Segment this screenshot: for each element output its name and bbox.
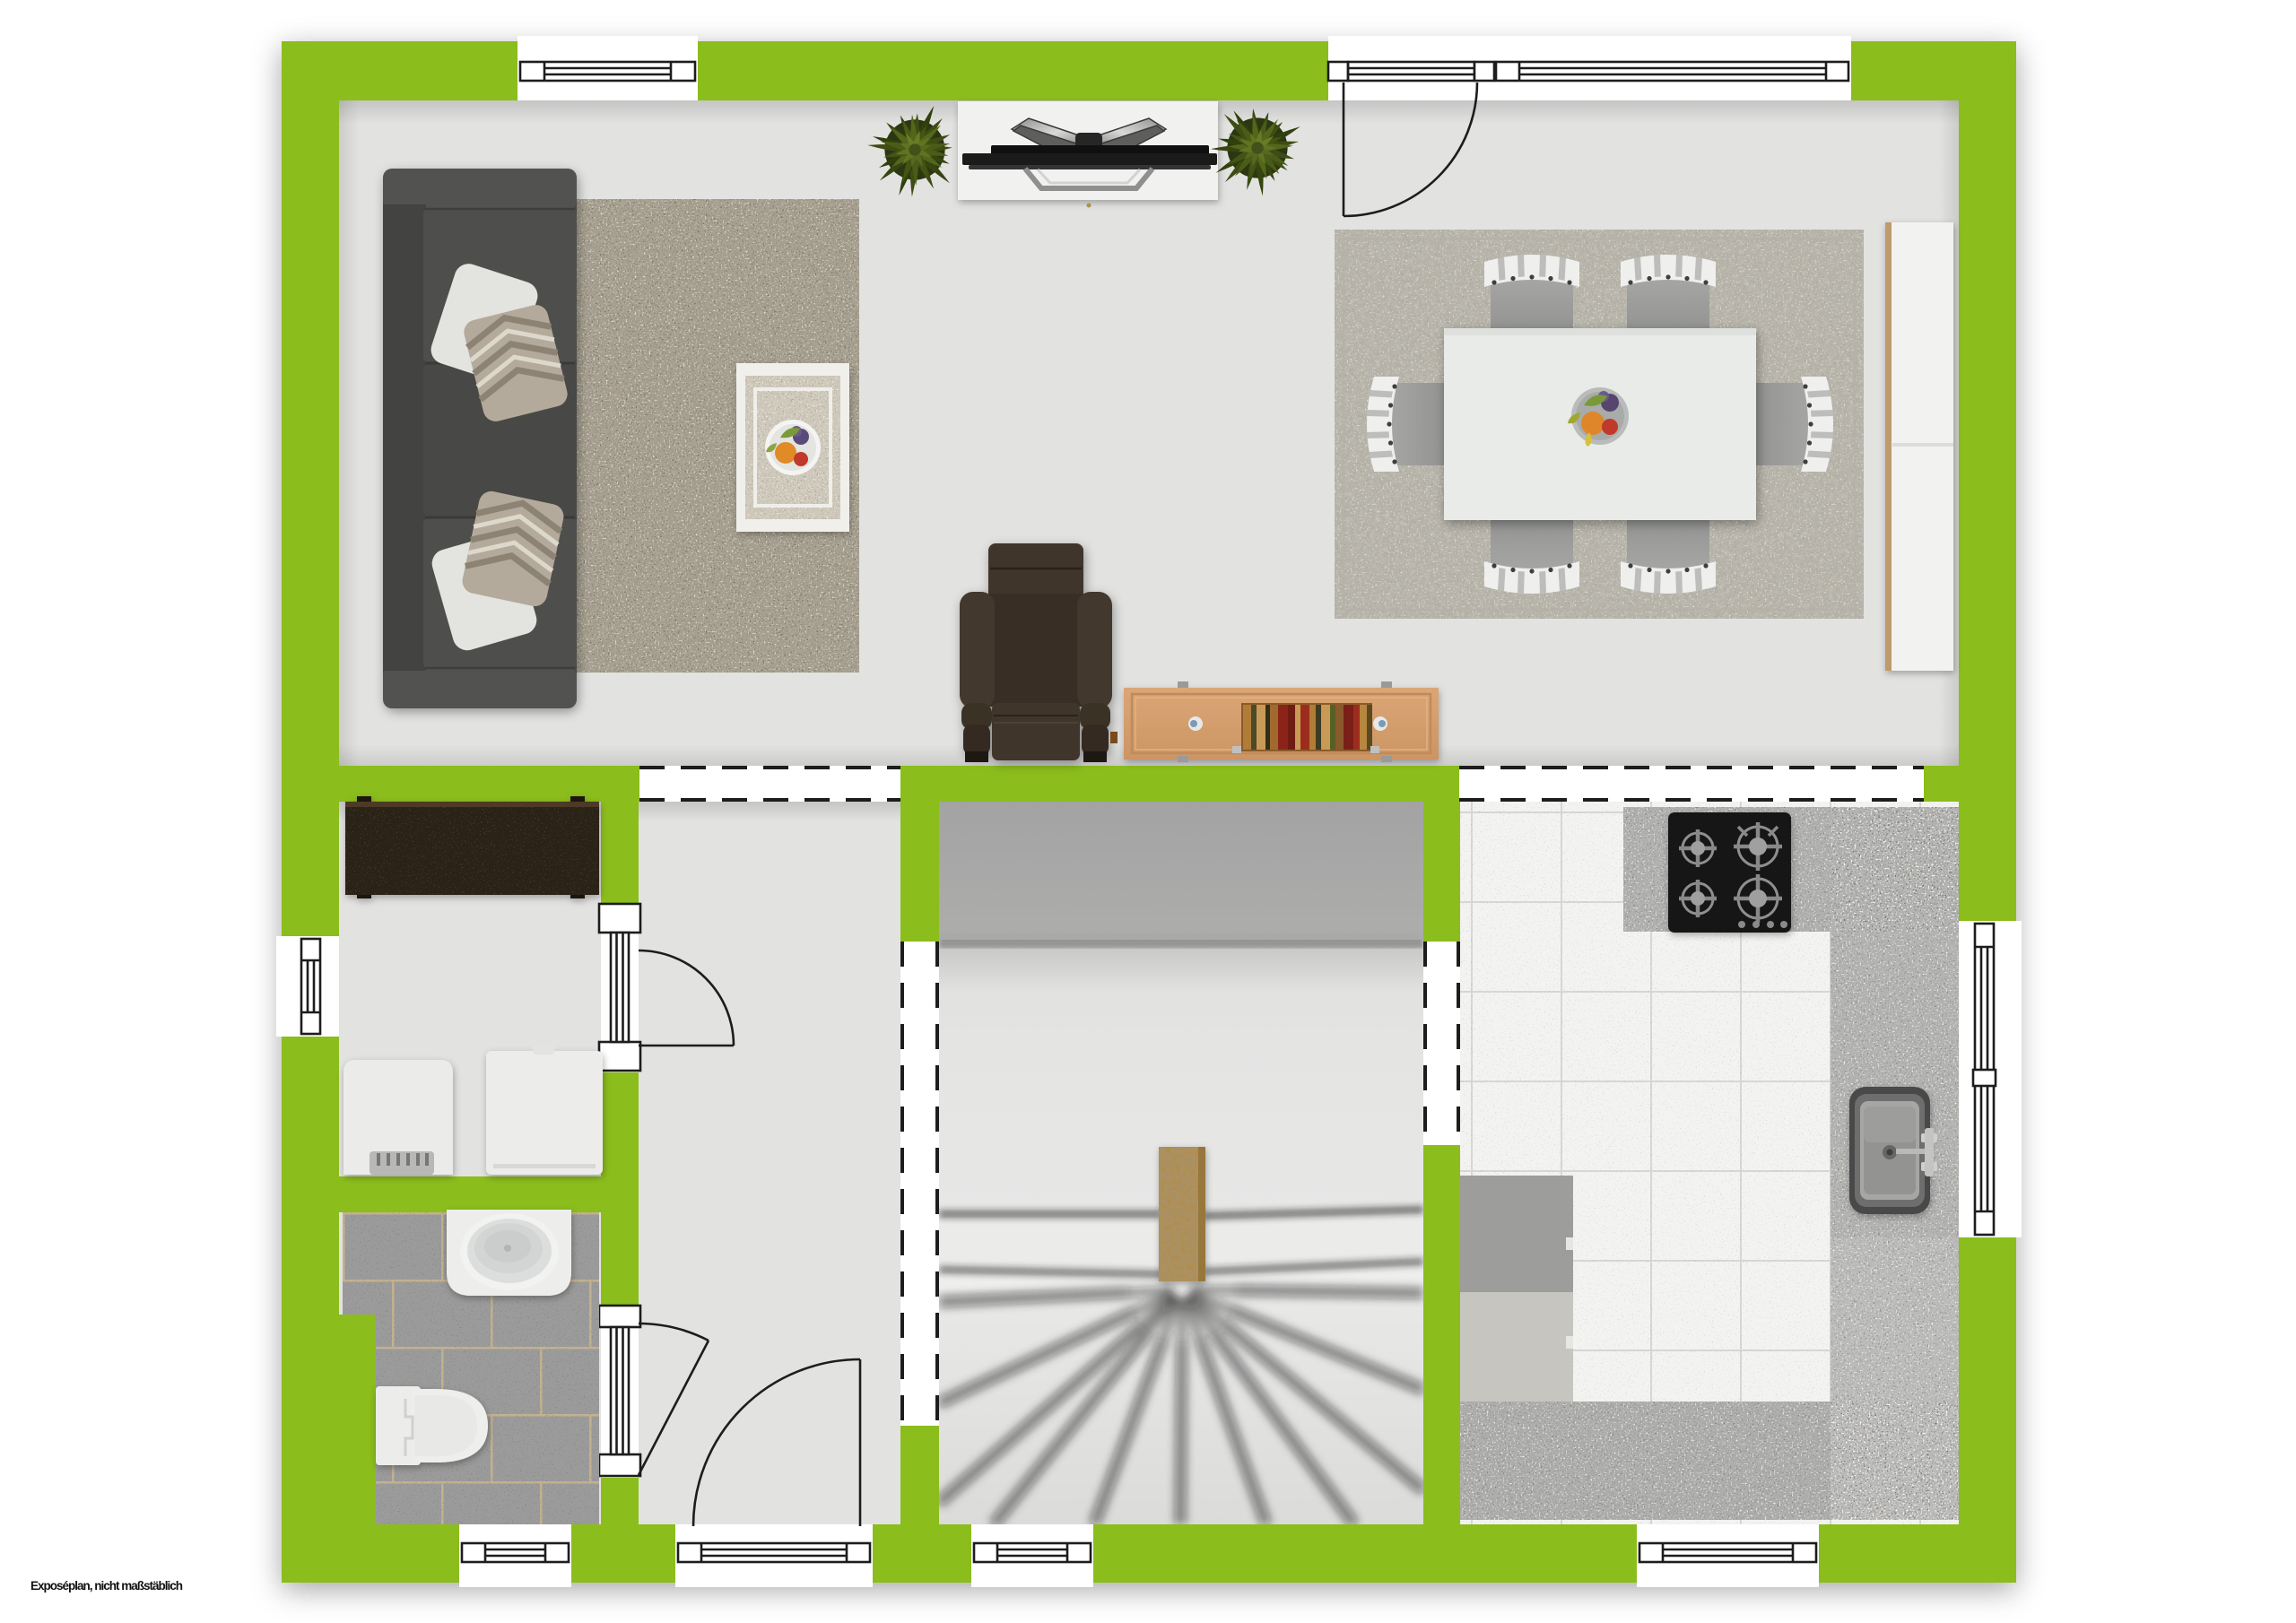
svg-text:Exposéplan, nicht maßstäblich: Exposéplan, nicht maßstäblich: [30, 1579, 183, 1593]
